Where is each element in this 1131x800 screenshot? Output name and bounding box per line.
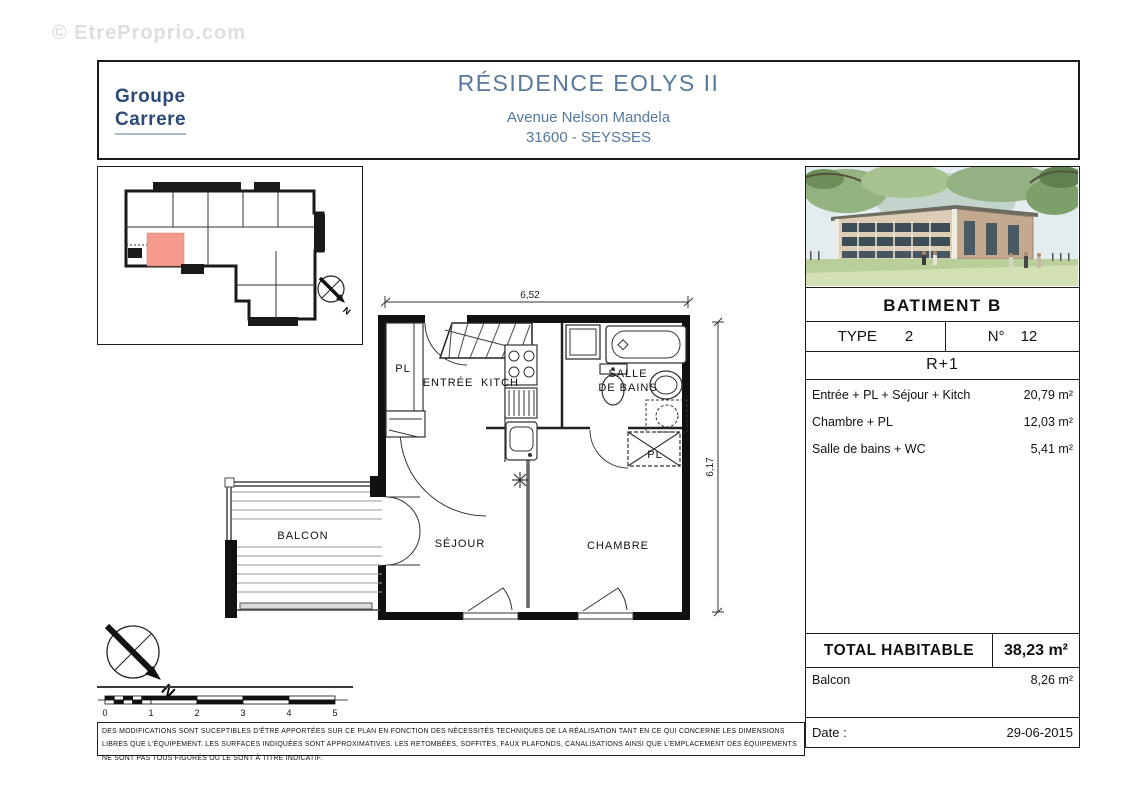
watermark: © EtreProprio.com (52, 22, 246, 45)
num-value: 12 (1021, 328, 1038, 345)
address-line1: Avenue Nelson Mandela (99, 109, 1078, 126)
total-habitable-row: TOTAL HABITABLE 38,23 m² (805, 633, 1080, 668)
scale-0: 0 (102, 708, 107, 718)
scale-5: 5 (332, 708, 337, 718)
label-balcon: BALCON (277, 530, 328, 542)
separator-line (97, 686, 353, 688)
scale-bar: 0 1 2 3 4 5 (98, 690, 350, 720)
kitchen-fixtures (505, 345, 537, 488)
balcon-row: Balcon 8,26 m² (805, 667, 1080, 718)
balcony: BALCON (225, 476, 386, 618)
building-illustration (806, 167, 1078, 286)
num-label: N° (988, 328, 1005, 345)
date-label: Date : (812, 725, 847, 740)
dim-width-label: 6,52 (520, 290, 540, 301)
residence-title: RÉSIDENCE EOLYS II (99, 70, 1078, 97)
balcon-label: Balcon (812, 673, 850, 687)
disclaimer-text: DES MODIFICATIONS SONT SUCEPTIBLES D'ÊTR… (97, 722, 805, 756)
area-label: Entrée + PL + Séjour + Kitch (812, 388, 970, 402)
area-value: 20,79 m² (1024, 388, 1073, 402)
total-value: 38,23 m² (993, 634, 1079, 667)
scale-1: 1 (148, 708, 153, 718)
areas-table: Entrée + PL + Séjour + Kitch 20,79 m² Ch… (805, 379, 1080, 634)
label-chambre: CHAMBRE (587, 540, 649, 552)
area-value: 12,03 m² (1024, 415, 1073, 429)
highlighted-unit (147, 233, 184, 266)
area-value: 5,41 m² (1031, 442, 1073, 456)
floor-level: R+1 (805, 351, 1080, 380)
area-label: Chambre + PL (812, 415, 893, 429)
area-row: Chambre + PL 12,03 m² (812, 415, 1073, 429)
type-number-row: TYPE 2 N° 12 (805, 321, 1080, 352)
plan-document-page: © EtreProprio.com Groupe Carrere RÉSIDEN… (0, 0, 1131, 800)
scale-2: 2 (194, 708, 199, 718)
date-value: 29-06-2015 (1007, 725, 1074, 740)
type-value: 2 (905, 328, 913, 345)
label-pl-chambre: PL (647, 449, 662, 461)
label-sdb-2: DE BAINS (598, 382, 657, 394)
entry-closet: PL (386, 323, 425, 437)
label-pl-entree: PL (395, 363, 410, 375)
label-kitch: KITCH (481, 377, 519, 389)
area-row: Entrée + PL + Séjour + Kitch 20,79 m² (812, 388, 1073, 402)
type-cell: TYPE 2 (806, 322, 946, 351)
building-photo (805, 166, 1080, 288)
area-label: Salle de bains + WC (812, 442, 926, 456)
date-row: Date : 29-06-2015 (805, 717, 1080, 748)
total-label: TOTAL HABITABLE (806, 634, 993, 667)
header-titles: RÉSIDENCE EOLYS II Avenue Nelson Mandela… (99, 70, 1078, 146)
scale-3: 3 (240, 708, 245, 718)
area-row: Salle de bains + WC 5,41 m² (812, 442, 1073, 456)
address-line2: 31600 - SEYSSES (99, 129, 1078, 146)
number-cell: N° 12 (946, 322, 1079, 351)
label-sdb-1: SALLE (608, 368, 647, 380)
label-entree: ENTRÉE (423, 376, 474, 389)
scale-4: 4 (286, 708, 291, 718)
batiment-title: BATIMENT B (805, 287, 1080, 322)
type-label: TYPE (838, 328, 877, 345)
apartment-floor-plan: 6,52 6,17 (200, 283, 740, 633)
header-box: Groupe Carrere RÉSIDENCE EOLYS II Avenue… (97, 60, 1080, 160)
label-sejour: SÉJOUR (435, 537, 486, 550)
compass-rose: N (95, 616, 195, 701)
balcon-value: 8,26 m² (1031, 673, 1073, 687)
dim-height-label: 6,17 (705, 457, 716, 477)
